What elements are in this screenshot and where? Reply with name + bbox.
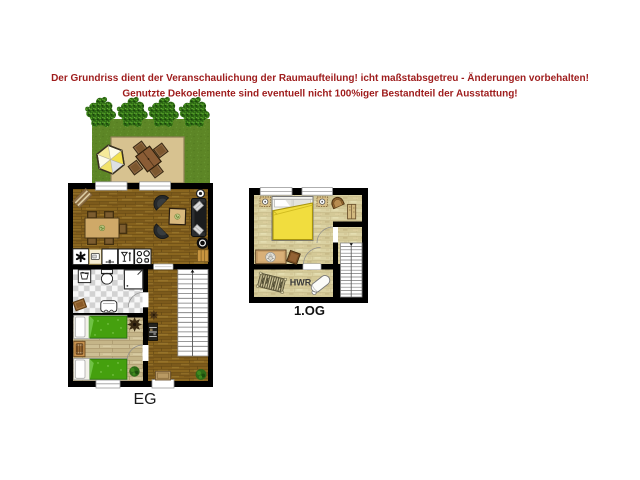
svg-text:EG: EG <box>133 391 156 408</box>
svg-text:1.OG: 1.OG <box>294 303 325 318</box>
svg-text:Der Grundriss dient der Verans: Der Grundriss dient der Veranschaulichun… <box>51 71 589 84</box>
svg-text:Genutzte Dekoelemente sind eve: Genutzte Dekoelemente sind eventuell nic… <box>122 89 517 100</box>
svg-text:HWR: HWR <box>290 277 312 287</box>
